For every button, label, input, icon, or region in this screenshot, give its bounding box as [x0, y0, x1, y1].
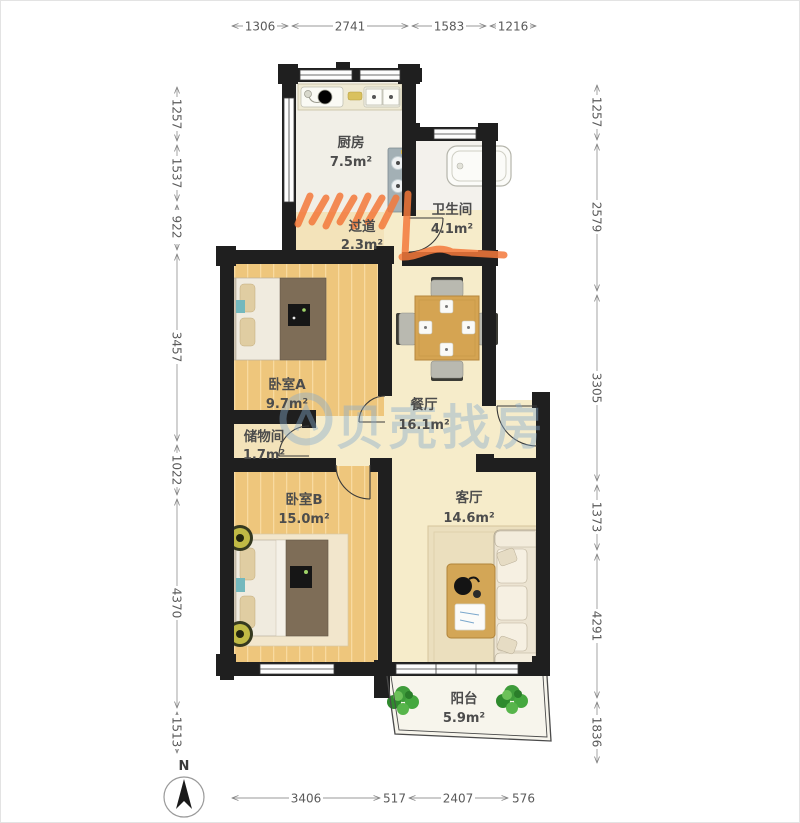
bathroom-window	[434, 129, 476, 139]
room-name: 储物间	[243, 428, 285, 445]
bathtub-icon	[447, 146, 511, 186]
dimension-label: 2579	[590, 202, 604, 233]
room-name: 阳台	[451, 690, 478, 707]
dimension-label: 517	[383, 792, 406, 806]
dimension-label: 1373	[590, 502, 604, 533]
bed-b-icon	[226, 525, 348, 647]
dimension-label: 3305	[590, 373, 604, 404]
dimension-label: 3457	[170, 332, 184, 363]
bedroom-b-window	[260, 664, 334, 674]
dimension-label: 4370	[170, 588, 184, 619]
dimension-label: 1257	[170, 99, 184, 130]
room-name: 过道	[349, 218, 376, 235]
room-area: 2.3m²	[341, 238, 383, 253]
room-area: 7.5m²	[330, 155, 372, 170]
room-name: 餐厅	[410, 396, 438, 413]
room-area: 15.0m²	[278, 512, 329, 527]
north-label: N	[179, 759, 190, 774]
dimension-label: 4291	[590, 611, 604, 642]
balcony-door-window	[396, 664, 518, 674]
dimension-label: 1306	[245, 20, 276, 34]
dimension-label: 1836	[590, 717, 604, 748]
room-area: 1.7m²	[243, 448, 285, 463]
room-name: 厨房	[338, 134, 365, 151]
floorplan-page: 贝壳找房 厨房 7.5m² 卫生间 4.1m² 过道 2.3m² 卧室A 9.7…	[0, 0, 800, 823]
room-area: 14.6m²	[443, 511, 494, 526]
room-area: 9.7m²	[266, 397, 308, 412]
room-area: 4.1m²	[431, 222, 473, 237]
kitchen-counter-icon	[298, 84, 402, 110]
room-area: 16.1m²	[398, 418, 449, 433]
dimension-label: 1257	[590, 97, 604, 128]
dimension-label: 2741	[335, 20, 366, 34]
dimension-label: 1583	[434, 20, 465, 34]
room-name: 卧室B	[285, 491, 322, 508]
room-area: 5.9m²	[443, 711, 485, 726]
dimension-label: 1513	[170, 717, 184, 748]
dimension-label: 1537	[170, 158, 184, 189]
coffee-table-icon	[447, 564, 495, 638]
room-name: 卧室A	[268, 376, 306, 393]
room-name: 客厅	[455, 489, 483, 506]
room-name: 卫生间	[432, 201, 473, 218]
dimension-label: 3406	[291, 792, 322, 806]
dimension-label: 922	[170, 216, 184, 239]
dimension-label: 2407	[443, 792, 474, 806]
dimension-label: 1216	[498, 20, 529, 34]
bed-a-icon	[228, 278, 326, 360]
floorplan: 贝壳找房 厨房 7.5m² 卫生间 4.1m² 过道 2.3m² 卧室A 9.7…	[0, 0, 800, 823]
dimension-label: 1022	[170, 455, 184, 486]
dimension-label: 576	[512, 792, 535, 806]
